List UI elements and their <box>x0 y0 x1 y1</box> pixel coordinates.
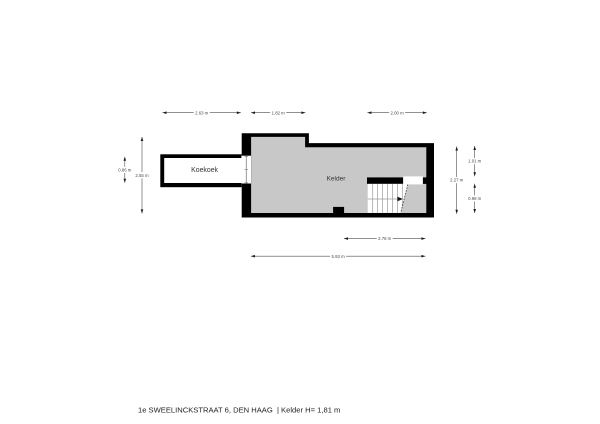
svg-text:2.78 m: 2.78 m <box>378 236 392 241</box>
svg-text:0.86 m: 0.86 m <box>118 167 132 172</box>
svg-text:0.98 m: 0.98 m <box>468 196 482 201</box>
svg-text:2.63 m: 2.63 m <box>195 110 209 115</box>
svg-text:2.00 m: 2.00 m <box>391 110 405 115</box>
svg-text:5.93 m: 5.93 m <box>332 254 346 259</box>
svg-text:Koekoek: Koekoek <box>191 167 218 174</box>
svg-text:Kelder: Kelder <box>327 176 347 183</box>
svg-text:1e SWEELINCKSTRAAT 6, DEN HAAG: 1e SWEELINCKSTRAAT 6, DEN HAAG | Kelder … <box>138 406 340 415</box>
svg-text:2.55 m: 2.55 m <box>135 173 149 178</box>
svg-text:1.82 m: 1.82 m <box>272 110 286 115</box>
svg-text:1.01 m: 1.01 m <box>468 159 482 164</box>
svg-text:2.27 m: 2.27 m <box>450 178 464 183</box>
